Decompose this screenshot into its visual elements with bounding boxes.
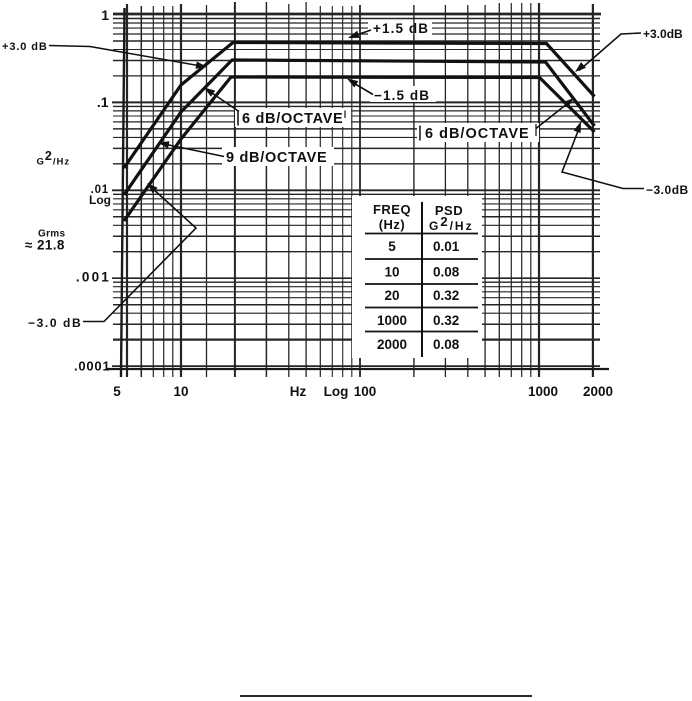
- svg-text:5: 5: [388, 239, 396, 254]
- svg-text:0.32: 0.32: [433, 313, 459, 328]
- svg-text:0.01: 0.01: [433, 239, 460, 254]
- svg-text:Hz: Hz: [290, 384, 307, 399]
- svg-text:Log: Log: [324, 384, 349, 399]
- svg-text:6 dB/OCTAVE: 6 dB/OCTAVE: [242, 111, 343, 127]
- svg-text:+1.5 dB: +1.5 dB: [373, 21, 429, 36]
- svg-text:−1.5 dB: −1.5 dB: [374, 88, 430, 103]
- svg-text:+3.0 dB: +3.0 dB: [2, 41, 48, 53]
- svg-text:2000: 2000: [377, 337, 407, 352]
- svg-text:(Hz): (Hz): [379, 217, 406, 232]
- svg-text:1000: 1000: [377, 313, 407, 328]
- svg-text:≈ 21.8: ≈ 21.8: [25, 238, 65, 253]
- svg-text:9 dB/OCTAVE: 9 dB/OCTAVE: [226, 150, 327, 166]
- svg-text:0.32: 0.32: [433, 288, 459, 303]
- svg-text:.001: .001: [76, 270, 111, 285]
- svg-text:5: 5: [113, 384, 121, 399]
- svg-text:10: 10: [384, 265, 399, 280]
- svg-text:.0001: .0001: [74, 359, 111, 374]
- svg-text:1000: 1000: [528, 384, 558, 399]
- svg-text:1: 1: [101, 7, 109, 23]
- svg-text:0.08: 0.08: [433, 337, 460, 352]
- svg-text:.1: .1: [97, 94, 109, 110]
- svg-text:FREQ: FREQ: [373, 202, 411, 217]
- svg-text:Log: Log: [89, 193, 111, 207]
- svg-text:0.08: 0.08: [433, 265, 460, 280]
- svg-text:+3.0dB: +3.0dB: [643, 27, 683, 41]
- svg-text:2000: 2000: [583, 384, 613, 399]
- svg-text:100: 100: [354, 384, 377, 399]
- svg-text:20: 20: [384, 288, 399, 303]
- svg-text:6 dB/OCTAVE: 6 dB/OCTAVE: [425, 126, 530, 142]
- svg-text:10: 10: [173, 384, 188, 399]
- svg-text:−3.0 dB: −3.0 dB: [28, 316, 82, 330]
- svg-text:−3.0dB: −3.0dB: [646, 183, 689, 197]
